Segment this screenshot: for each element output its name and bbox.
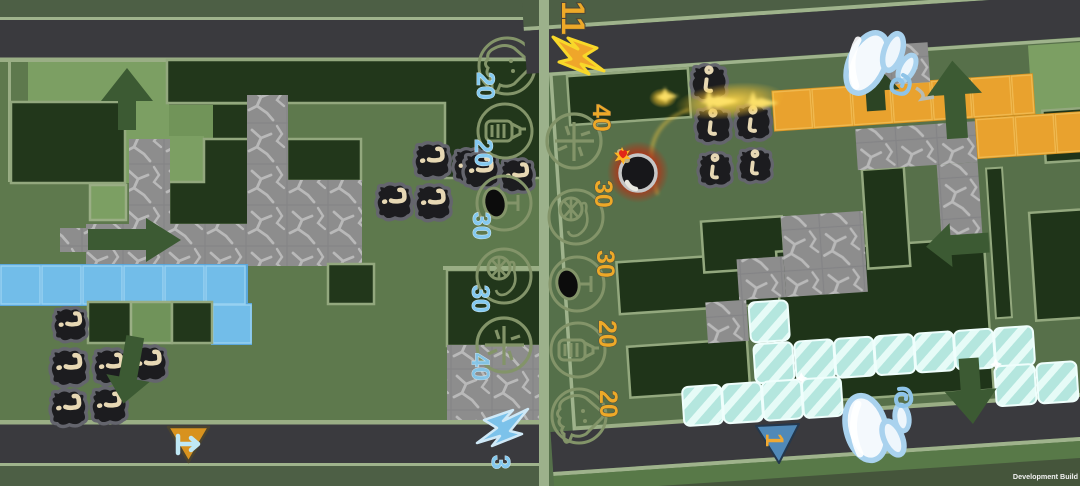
svg-text:1: 1 xyxy=(760,433,788,447)
svg-text:20: 20 xyxy=(471,72,499,100)
svg-text:30: 30 xyxy=(591,250,619,278)
svg-text:Development Build: Development Build xyxy=(1013,472,1078,481)
svg-text:20: 20 xyxy=(469,139,497,167)
svg-text:30: 30 xyxy=(589,180,617,208)
svg-text:11: 11 xyxy=(555,1,591,35)
svg-text:20: 20 xyxy=(593,320,621,348)
svg-text:30: 30 xyxy=(466,285,494,313)
svg-text:20: 20 xyxy=(594,390,622,418)
svg-text:3: 3 xyxy=(486,455,516,469)
svg-text:40: 40 xyxy=(587,104,615,132)
svg-text:30: 30 xyxy=(467,212,495,240)
svg-text:40: 40 xyxy=(466,353,494,381)
